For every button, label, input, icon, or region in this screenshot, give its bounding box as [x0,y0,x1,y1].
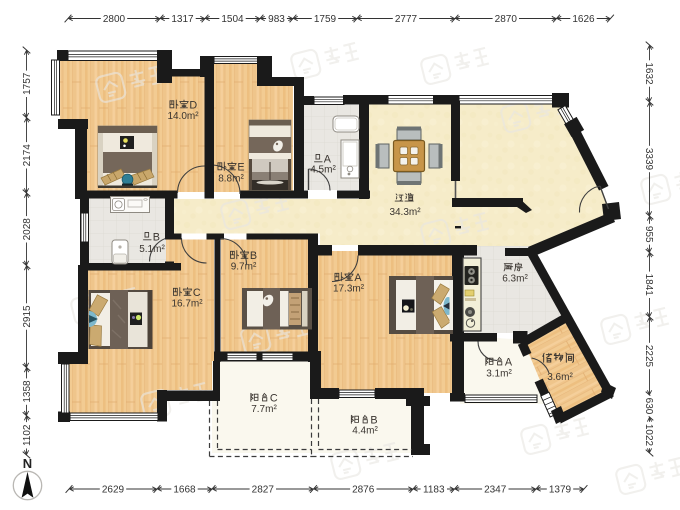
svg-text:4.4m²: 4.4m² [352,426,378,437]
svg-text:B: B [250,250,257,262]
svg-text:3.1m²: 3.1m² [486,369,512,380]
svg-text:C: C [270,392,278,404]
svg-text:2225: 2225 [643,345,654,368]
svg-text:C: C [193,287,201,299]
svg-text:34.3m²: 34.3m² [389,207,421,218]
svg-text:16.7m²: 16.7m² [171,299,203,310]
svg-text:7.7m²: 7.7m² [251,404,277,415]
svg-text:N: N [23,456,32,471]
svg-text:5.1m²: 5.1m² [139,244,165,255]
svg-text:1626: 1626 [572,14,595,25]
svg-text:1102: 1102 [22,424,33,446]
svg-text:9.7m²: 9.7m² [231,262,257,273]
svg-text:17.3m²: 17.3m² [333,284,365,295]
svg-text:E: E [237,161,244,173]
svg-text:A: A [354,272,362,284]
svg-text:8.8m²: 8.8m² [218,174,244,185]
svg-text:955: 955 [643,226,654,243]
svg-text:1379: 1379 [549,485,572,496]
svg-text:1022: 1022 [643,424,654,447]
svg-text:2915: 2915 [22,305,33,328]
svg-text:1317: 1317 [171,14,194,25]
svg-text:2876: 2876 [352,485,375,496]
svg-text:2777: 2777 [395,14,418,25]
svg-text:2800: 2800 [103,14,126,25]
svg-text:6.3m²: 6.3m² [502,274,528,285]
svg-text:2629: 2629 [102,485,125,496]
svg-text:2870: 2870 [495,14,518,25]
svg-text:1841: 1841 [643,274,654,297]
svg-text:D: D [189,99,197,111]
svg-text:3339: 3339 [643,148,654,171]
svg-text:14.0m²: 14.0m² [167,111,199,122]
svg-text:1757: 1757 [22,72,33,95]
svg-text:2827: 2827 [252,485,275,496]
svg-text:3.6m²: 3.6m² [547,372,573,383]
svg-text:630: 630 [643,398,654,415]
svg-text:1504: 1504 [221,14,244,25]
svg-text:1759: 1759 [314,14,337,25]
svg-text:1358: 1358 [22,380,33,403]
svg-text:2028: 2028 [22,218,33,241]
svg-text:1668: 1668 [173,485,196,496]
svg-text:B: B [153,231,160,243]
svg-text:2174: 2174 [22,144,33,167]
svg-text:1632: 1632 [643,62,654,85]
svg-text:1183: 1183 [423,485,445,496]
svg-text:2347: 2347 [484,485,507,496]
svg-text:A: A [505,356,513,368]
svg-text:983: 983 [268,14,285,25]
svg-text:4.5m²: 4.5m² [310,165,336,176]
